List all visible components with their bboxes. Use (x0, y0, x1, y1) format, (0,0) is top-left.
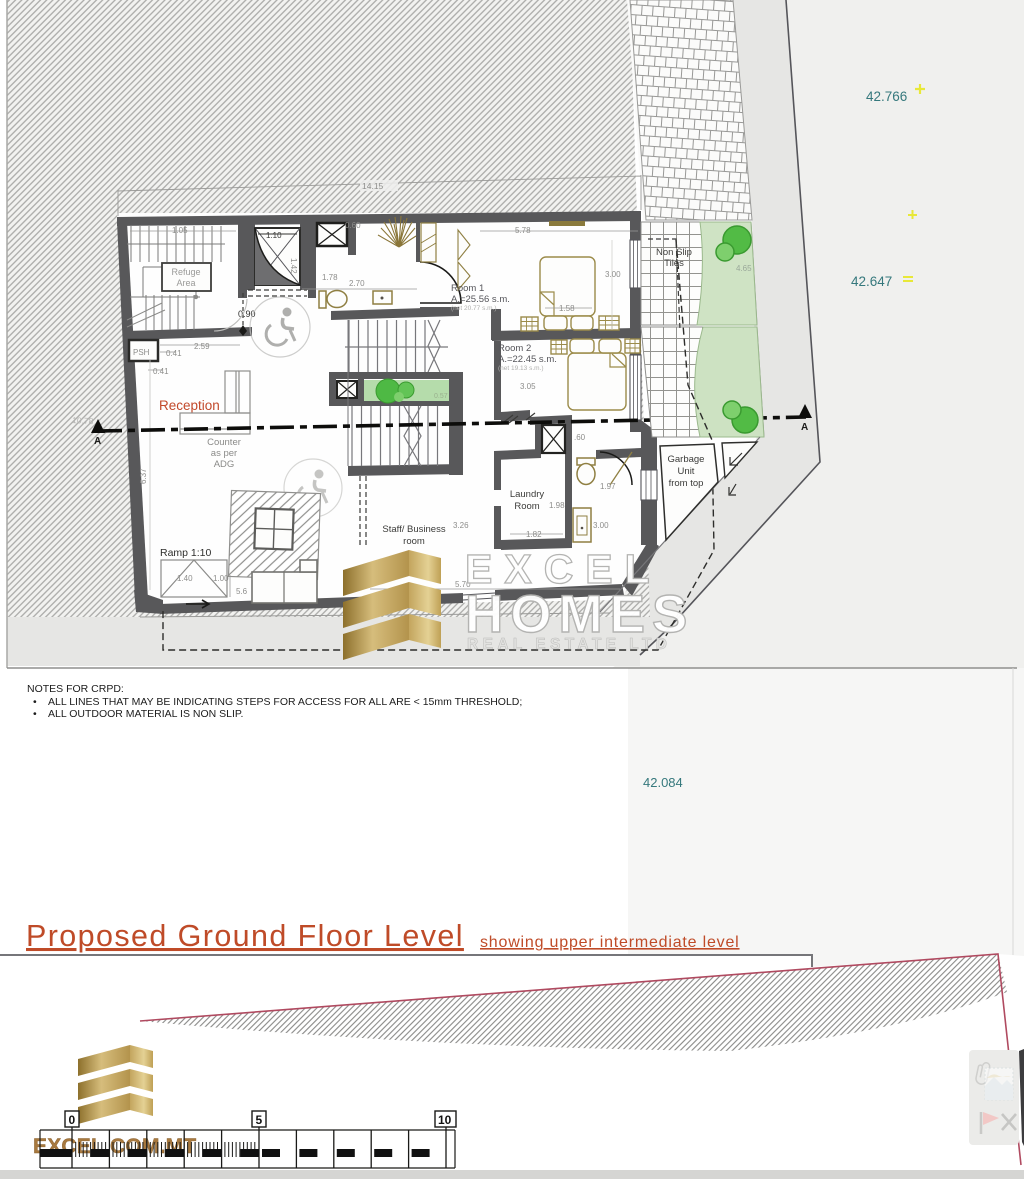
svg-text:6.37: 6.37 (139, 468, 148, 484)
svg-text:1.40: 1.40 (177, 574, 193, 583)
svg-text:ALL LINES THAT MAY BE INDICATI: ALL LINES THAT MAY BE INDICATING STEPS F… (48, 696, 522, 708)
svg-text:•: • (33, 696, 37, 708)
svg-text:3.26: 3.26 (453, 521, 469, 530)
svg-text:1.58: 1.58 (559, 304, 575, 313)
svg-text:Refuge: Refuge (171, 267, 200, 277)
svg-text:(net 19.13 s.m.): (net 19.13 s.m.) (498, 365, 544, 372)
svg-text:1.05: 1.05 (172, 226, 188, 235)
svg-text:Room 1: Room 1 (451, 283, 484, 294)
svg-text:10.78: 10.78 (72, 415, 94, 426)
svg-text:1.98: 1.98 (549, 501, 565, 510)
svg-text:showing upper intermediate lev: showing upper intermediate level (480, 934, 740, 951)
svg-text:5.78: 5.78 (515, 226, 531, 235)
svg-text:as per: as per (211, 448, 237, 459)
svg-text:Laundry: Laundry (510, 489, 545, 500)
svg-text:1.00: 1.00 (213, 574, 229, 583)
svg-text:Reception: Reception (159, 398, 220, 413)
svg-text:Area: Area (176, 278, 195, 288)
svg-text:from top: from top (669, 478, 704, 489)
svg-text:PSH: PSH (133, 348, 150, 357)
svg-text:ADG: ADG (214, 459, 235, 470)
svg-text:14.15: 14.15 (362, 181, 384, 191)
svg-text:1.10: 1.10 (266, 231, 282, 240)
svg-text:Tiles: Tiles (664, 258, 684, 269)
svg-text:A.=25.56 s.m.: A.=25.56 s.m. (451, 294, 510, 305)
svg-text:10: 10 (438, 1113, 452, 1127)
svg-text:3.00: 3.00 (605, 270, 621, 279)
svg-text:Staff/ Business: Staff/ Business (382, 524, 445, 535)
svg-text:4.65: 4.65 (736, 264, 752, 273)
svg-text:A.=22.45 s.m.: A.=22.45 s.m. (498, 354, 557, 365)
svg-text:Unit: Unit (678, 466, 695, 477)
svg-text:1.97: 1.97 (600, 482, 616, 491)
svg-text:Proposed Ground Floor Level: Proposed Ground Floor Level (26, 919, 464, 953)
svg-text:3.00: 3.00 (593, 521, 609, 530)
svg-text:3.05: 3.05 (520, 382, 536, 391)
svg-text:2.59: 2.59 (194, 342, 210, 351)
svg-text:•: • (33, 708, 37, 720)
svg-text:A: A (94, 436, 101, 447)
svg-text:A: A (801, 422, 808, 433)
svg-text:0.60: 0.60 (345, 221, 361, 230)
svg-text:42.647: 42.647 (851, 274, 892, 289)
svg-text:42.084: 42.084 (643, 775, 683, 790)
svg-text:ALL OUTDOOR MATERIAL IS NON SL: ALL OUTDOOR MATERIAL IS NON SLIP. (48, 708, 243, 720)
svg-text:Room 2: Room 2 (498, 343, 531, 354)
svg-text:42.766: 42.766 (866, 89, 907, 104)
svg-text:2.70: 2.70 (349, 279, 365, 288)
svg-text:5.6: 5.6 (236, 587, 248, 596)
svg-text:Counter: Counter (207, 437, 241, 448)
svg-text:Non Slip: Non Slip (656, 247, 692, 258)
svg-text:Garbage: Garbage (668, 454, 705, 465)
svg-text:room: room (403, 536, 425, 547)
svg-text:1.78: 1.78 (322, 273, 338, 282)
svg-text:0: 0 (69, 1113, 76, 1127)
svg-text:0.41: 0.41 (153, 367, 169, 376)
svg-text:1.82: 1.82 (526, 530, 542, 539)
svg-text:Ramp 1:10: Ramp 1:10 (160, 547, 212, 559)
svg-text:5: 5 (256, 1113, 263, 1127)
svg-text:Room: Room (514, 501, 539, 512)
svg-text:(net 20.77 s.m.): (net 20.77 s.m.) (451, 305, 497, 312)
svg-text:0.57: 0.57 (434, 393, 448, 400)
svg-text:NOTES FOR CRPD:: NOTES FOR CRPD: (27, 683, 124, 695)
svg-text:0.41: 0.41 (166, 349, 182, 358)
svg-text:REAL ESTATE LTD: REAL ESTATE LTD (467, 636, 671, 653)
svg-text:1.42: 1.42 (289, 258, 298, 274)
svg-text:.60: .60 (574, 433, 586, 442)
